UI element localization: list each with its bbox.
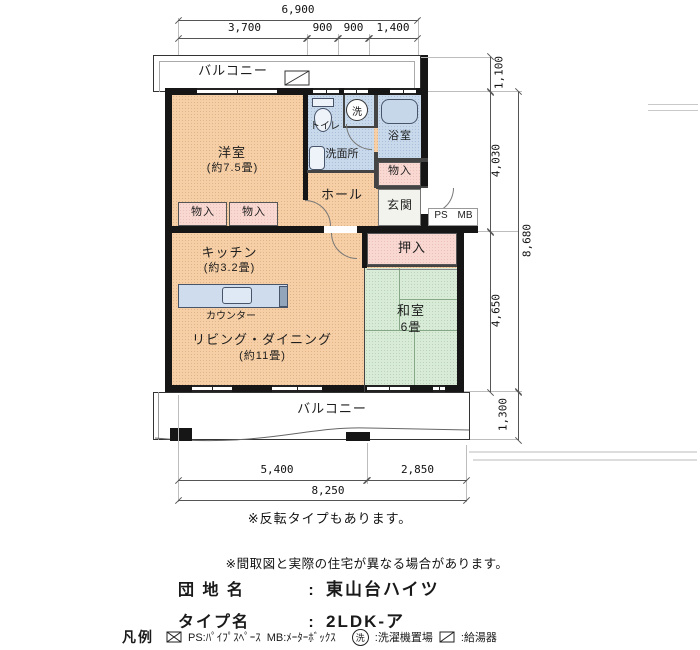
water-heater-legend-icon: [439, 631, 455, 643]
tatami-line: [414, 330, 415, 385]
extension-line: [478, 231, 518, 232]
legend-heater-desc: :給湯器: [461, 629, 497, 645]
dim-line-right-balcony-top: [490, 57, 491, 92]
dim-bottom-total: 8,250: [268, 485, 388, 498]
wall-right-upper: [421, 55, 428, 188]
extension-line: [178, 395, 179, 502]
dim-right-balcony-bottom: 1,300: [497, 375, 510, 455]
japanese-room-label: 和室: [383, 304, 439, 319]
wall-washroom-bottom: [307, 170, 374, 173]
kitchen-stove-icon: [279, 286, 288, 307]
pipe-space-icon: [166, 631, 182, 643]
neighbor-line: [648, 110, 698, 111]
mb-label: MB: [453, 210, 477, 222]
closet-label: 押入: [367, 241, 457, 256]
legend-washer-desc: :洗濯機置場: [375, 629, 433, 645]
dim-right-lower: 4,650: [490, 271, 503, 351]
wall-japanese-left: [364, 268, 365, 392]
wall-bath-bottom: [374, 158, 428, 162]
note-disclaimer: ※間取図と実際の住宅が異なる場合があります。: [172, 553, 562, 572]
western-room-label: 洋室: [187, 146, 277, 161]
counter-label: カウンター: [193, 311, 269, 323]
balcony-edge-curve: [153, 418, 698, 468]
dim-line-top-seg4: [369, 38, 418, 39]
dim-line-bottom-seg1: [178, 480, 367, 481]
dim-line-top-seg3: [338, 38, 369, 39]
kitchen-size: (約3.2畳): [177, 262, 282, 275]
wall-left: [165, 88, 172, 392]
storage-left-label: 物入: [179, 206, 227, 219]
toilet-label: トイレ: [305, 121, 345, 133]
extension-line: [466, 445, 467, 502]
dim-line-right-balcony-bottom: [518, 392, 519, 440]
floor-plan-sheet: 6,900 3,700 900 900 1,400 バルコニー 洗: [0, 0, 700, 650]
dim-line-right-total: [518, 92, 519, 392]
dim-right-balcony-top: 1,100: [493, 33, 506, 113]
western-room-size: (約7.5畳): [180, 162, 285, 175]
tatami-line: [399, 299, 457, 300]
legend-washer-symbol: 洗: [356, 631, 365, 644]
extension-line: [470, 439, 518, 440]
legend-ps: PS:ﾊﾟｲﾌﾟｽﾍﾟｰｽ: [188, 629, 261, 645]
hall-label: ホール: [310, 188, 374, 203]
storage-bath-label: 物入: [379, 165, 421, 178]
dim-line-top-seg2: [307, 38, 338, 39]
kitchen-sink-icon: [222, 287, 252, 304]
dim-right-total: 8,680: [521, 201, 534, 281]
dim-line-bottom-total: [178, 500, 467, 501]
extension-line: [428, 91, 522, 92]
dim-top-total: 6,900: [238, 4, 358, 17]
wall-bath-left-upper: [374, 95, 378, 128]
estate-name-value: 東山台ハイツ: [326, 575, 440, 600]
bath-label: 浴室: [379, 130, 421, 143]
window-bath: [390, 88, 416, 95]
entrance-door-opening: [421, 188, 428, 214]
closet-sliding-door-line2: [367, 269, 457, 270]
ps-label: PS: [429, 210, 453, 222]
wall-right-lower: [457, 226, 464, 392]
living-label: リビング・ダイニング: [187, 333, 337, 348]
dim-line-bottom-seg2: [367, 480, 467, 481]
window-toilet: [313, 88, 339, 95]
dim-top-seg1: 3,700: [182, 22, 307, 35]
washroom-label: 洗面所: [311, 148, 373, 161]
balcony-partition-mid: [346, 432, 370, 441]
dim-bottom-seg1: 5,400: [222, 464, 332, 477]
water-heater-icon: [284, 70, 310, 86]
balcony-top-label: バルコニー: [188, 64, 278, 79]
neighbor-line: [648, 104, 698, 105]
wall-middle-left: [165, 226, 324, 233]
legend: 凡例 PS:ﾊﾟｲﾌﾟｽﾍﾟｰｽ MB:ﾒｰﾀｰﾎﾞｯｸｽ 洗 :洗濯機置場 :…: [122, 627, 497, 647]
dim-line-top-seg1: [178, 38, 307, 39]
wall-western-east: [303, 88, 308, 200]
legend-mb: MB:ﾒｰﾀｰﾎﾞｯｸｽ: [267, 629, 336, 645]
window-japanese: [367, 385, 410, 392]
estate-name-colon: :: [296, 582, 326, 600]
washing-machine-legend-icon: 洗: [352, 629, 369, 646]
living-size: (約11畳): [210, 350, 315, 363]
japanese-room-size: 6畳: [388, 321, 434, 335]
window-japanese-small: [433, 385, 445, 392]
dim-right-upper: 4,030: [490, 121, 503, 201]
dim-top-seg4: 1,400: [358, 22, 428, 35]
kitchen-label: キッチン: [177, 246, 282, 261]
extension-line: [421, 57, 490, 58]
toilet-tank-icon: [312, 98, 334, 107]
balcony-partition-left: [170, 428, 192, 441]
estate-name-row: 団 地 名 : 東山台ハイツ: [178, 575, 518, 600]
bathtub-icon: [381, 99, 418, 124]
window-washer: [344, 88, 368, 95]
legend-heading: 凡例: [122, 627, 154, 647]
estate-name-label: 団 地 名: [178, 576, 296, 600]
balcony-bottom-label: バルコニー: [287, 402, 377, 417]
storage-right-label: 物入: [230, 206, 278, 219]
window-living-1: [192, 385, 232, 392]
note-flip-type: ※反転タイプもあります。: [155, 508, 505, 527]
closet-sliding-door-line1: [367, 265, 457, 267]
window-living-2: [272, 385, 322, 392]
washing-machine-icon: 洗: [346, 99, 368, 121]
washer-label: 洗: [352, 103, 362, 118]
entrance-label: 玄関: [383, 199, 417, 213]
window-western: [197, 88, 277, 95]
extension-line: [464, 391, 522, 392]
dim-bottom-seg2: 2,850: [370, 464, 465, 477]
